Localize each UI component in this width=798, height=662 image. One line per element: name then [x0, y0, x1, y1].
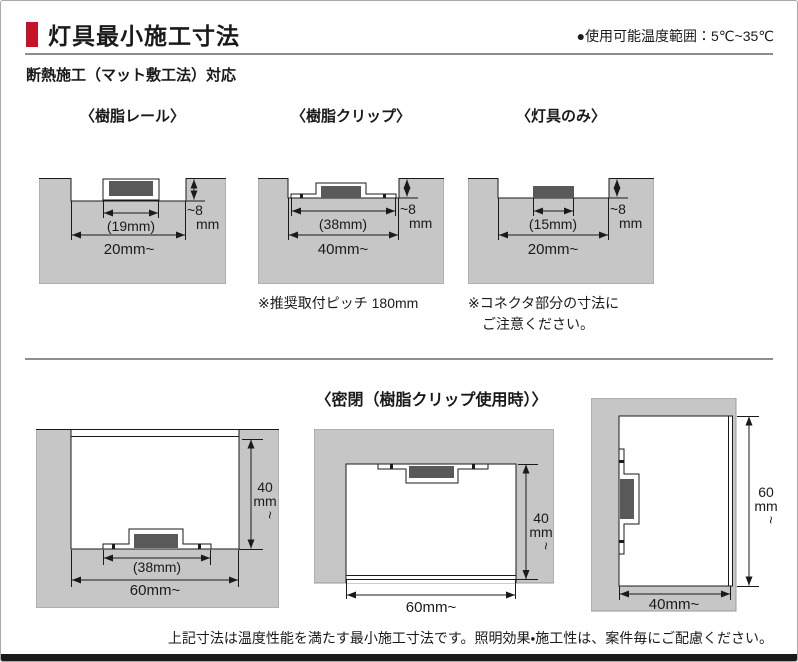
footer-bar — [1, 654, 797, 661]
section-divider — [25, 358, 773, 360]
light-fixture — [134, 534, 178, 548]
depth-unit-label: mm — [409, 215, 432, 231]
opening-width-dimension: 60mm~ — [347, 579, 516, 616]
cavity-height-dimension: 60 mm ~ — [737, 417, 779, 587]
clip-screw-left — [112, 544, 115, 549]
spec-sheet-page: 灯具最小施工寸法 ●使用可能温度範囲：5℃~35℃ 断熱施工（マット敷工法）対応… — [0, 0, 798, 662]
clip-screw-right — [472, 464, 475, 469]
label-resin-clip: 〈樹脂クリップ〉 — [258, 105, 444, 126]
footer-note: 上記寸法は温度性能を満たす最小施工寸法です。照明効果・施工性は、案件毎にご配慮く… — [168, 628, 773, 648]
connector-note: ※コネクタ部分の寸法に ご注意ください。 — [468, 293, 619, 335]
depth-unit-label: mm — [196, 216, 219, 232]
clip-screw-right — [198, 544, 201, 549]
clip-screw-bottom — [619, 540, 624, 543]
fixture-width-label: (15mm) — [529, 216, 577, 232]
light-fixture — [409, 466, 454, 478]
clip-screw-left — [390, 464, 393, 469]
light-fixture — [109, 181, 153, 196]
label-fixture-only: 〈灯具のみ〉 — [468, 105, 654, 126]
light-fixture — [321, 186, 361, 198]
sealed-bottom-mount-diagram: 40 mm ~ (38mm) 60mm~ — [36, 429, 279, 608]
opening-width-label: 20mm~ — [104, 241, 155, 258]
fixture-width-label: (38mm) — [133, 559, 181, 575]
height-cont-label: ~ — [262, 511, 278, 519]
opening-width-label: 60mm~ — [406, 599, 457, 616]
clip-screw-right — [383, 194, 386, 198]
opening-width-label: 60mm~ — [130, 582, 181, 599]
fixture-width-label: (19mm) — [107, 218, 155, 234]
resin-rail-diagram: (19mm) 20mm~ ~8 mm — [39, 178, 226, 284]
opening-width-label: 20mm~ — [528, 241, 579, 258]
sealed-section-title: 〈密閉（樹脂クリップ使用時）〉 — [259, 386, 604, 410]
height-unit-label: mm — [253, 493, 276, 509]
height-cont-label: ~ — [763, 516, 779, 524]
fixture-width-label: (38mm) — [319, 216, 367, 232]
connector-note-line2: ご注意ください。 — [468, 314, 619, 335]
sealed-top-mount-diagram: 40 mm ~ 60mm~ — [314, 429, 554, 621]
insulation-method-subheader: 断熱施工（マット敷工法）対応 — [26, 64, 236, 85]
title-accent-bar — [26, 22, 38, 47]
label-resin-rail: 〈樹脂レール〉 — [39, 105, 226, 126]
sealed-side-mount-diagram: 60 mm ~ 40mm~ — [591, 398, 781, 619]
height-cont-label: ~ — [538, 542, 554, 550]
opening-width-label: 40mm~ — [318, 241, 369, 258]
clip-screw-left — [300, 194, 303, 198]
connector-note-line1: ※コネクタ部分の寸法に — [468, 293, 619, 314]
light-fixture — [620, 479, 634, 519]
height-unit-label: mm — [754, 498, 777, 514]
depth-unit-label: mm — [619, 215, 642, 231]
clip-screw-top — [619, 460, 624, 463]
temperature-range-note: ●使用可能温度範囲：5℃~35℃ — [577, 26, 774, 46]
fixture-only-diagram: (15mm) 20mm~ ~8 mm — [468, 178, 654, 284]
page-title: 灯具最小施工寸法 — [48, 17, 240, 51]
header-divider — [25, 53, 773, 55]
light-fixture — [533, 186, 574, 198]
resin-clip-diagram: (38mm) 40mm~ ~8 mm — [258, 178, 444, 284]
opening-width-label: 40mm~ — [649, 596, 700, 613]
height-unit-label: mm — [529, 524, 552, 540]
mounting-pitch-note: ※推奨取付ピッチ 180mm — [258, 293, 418, 314]
